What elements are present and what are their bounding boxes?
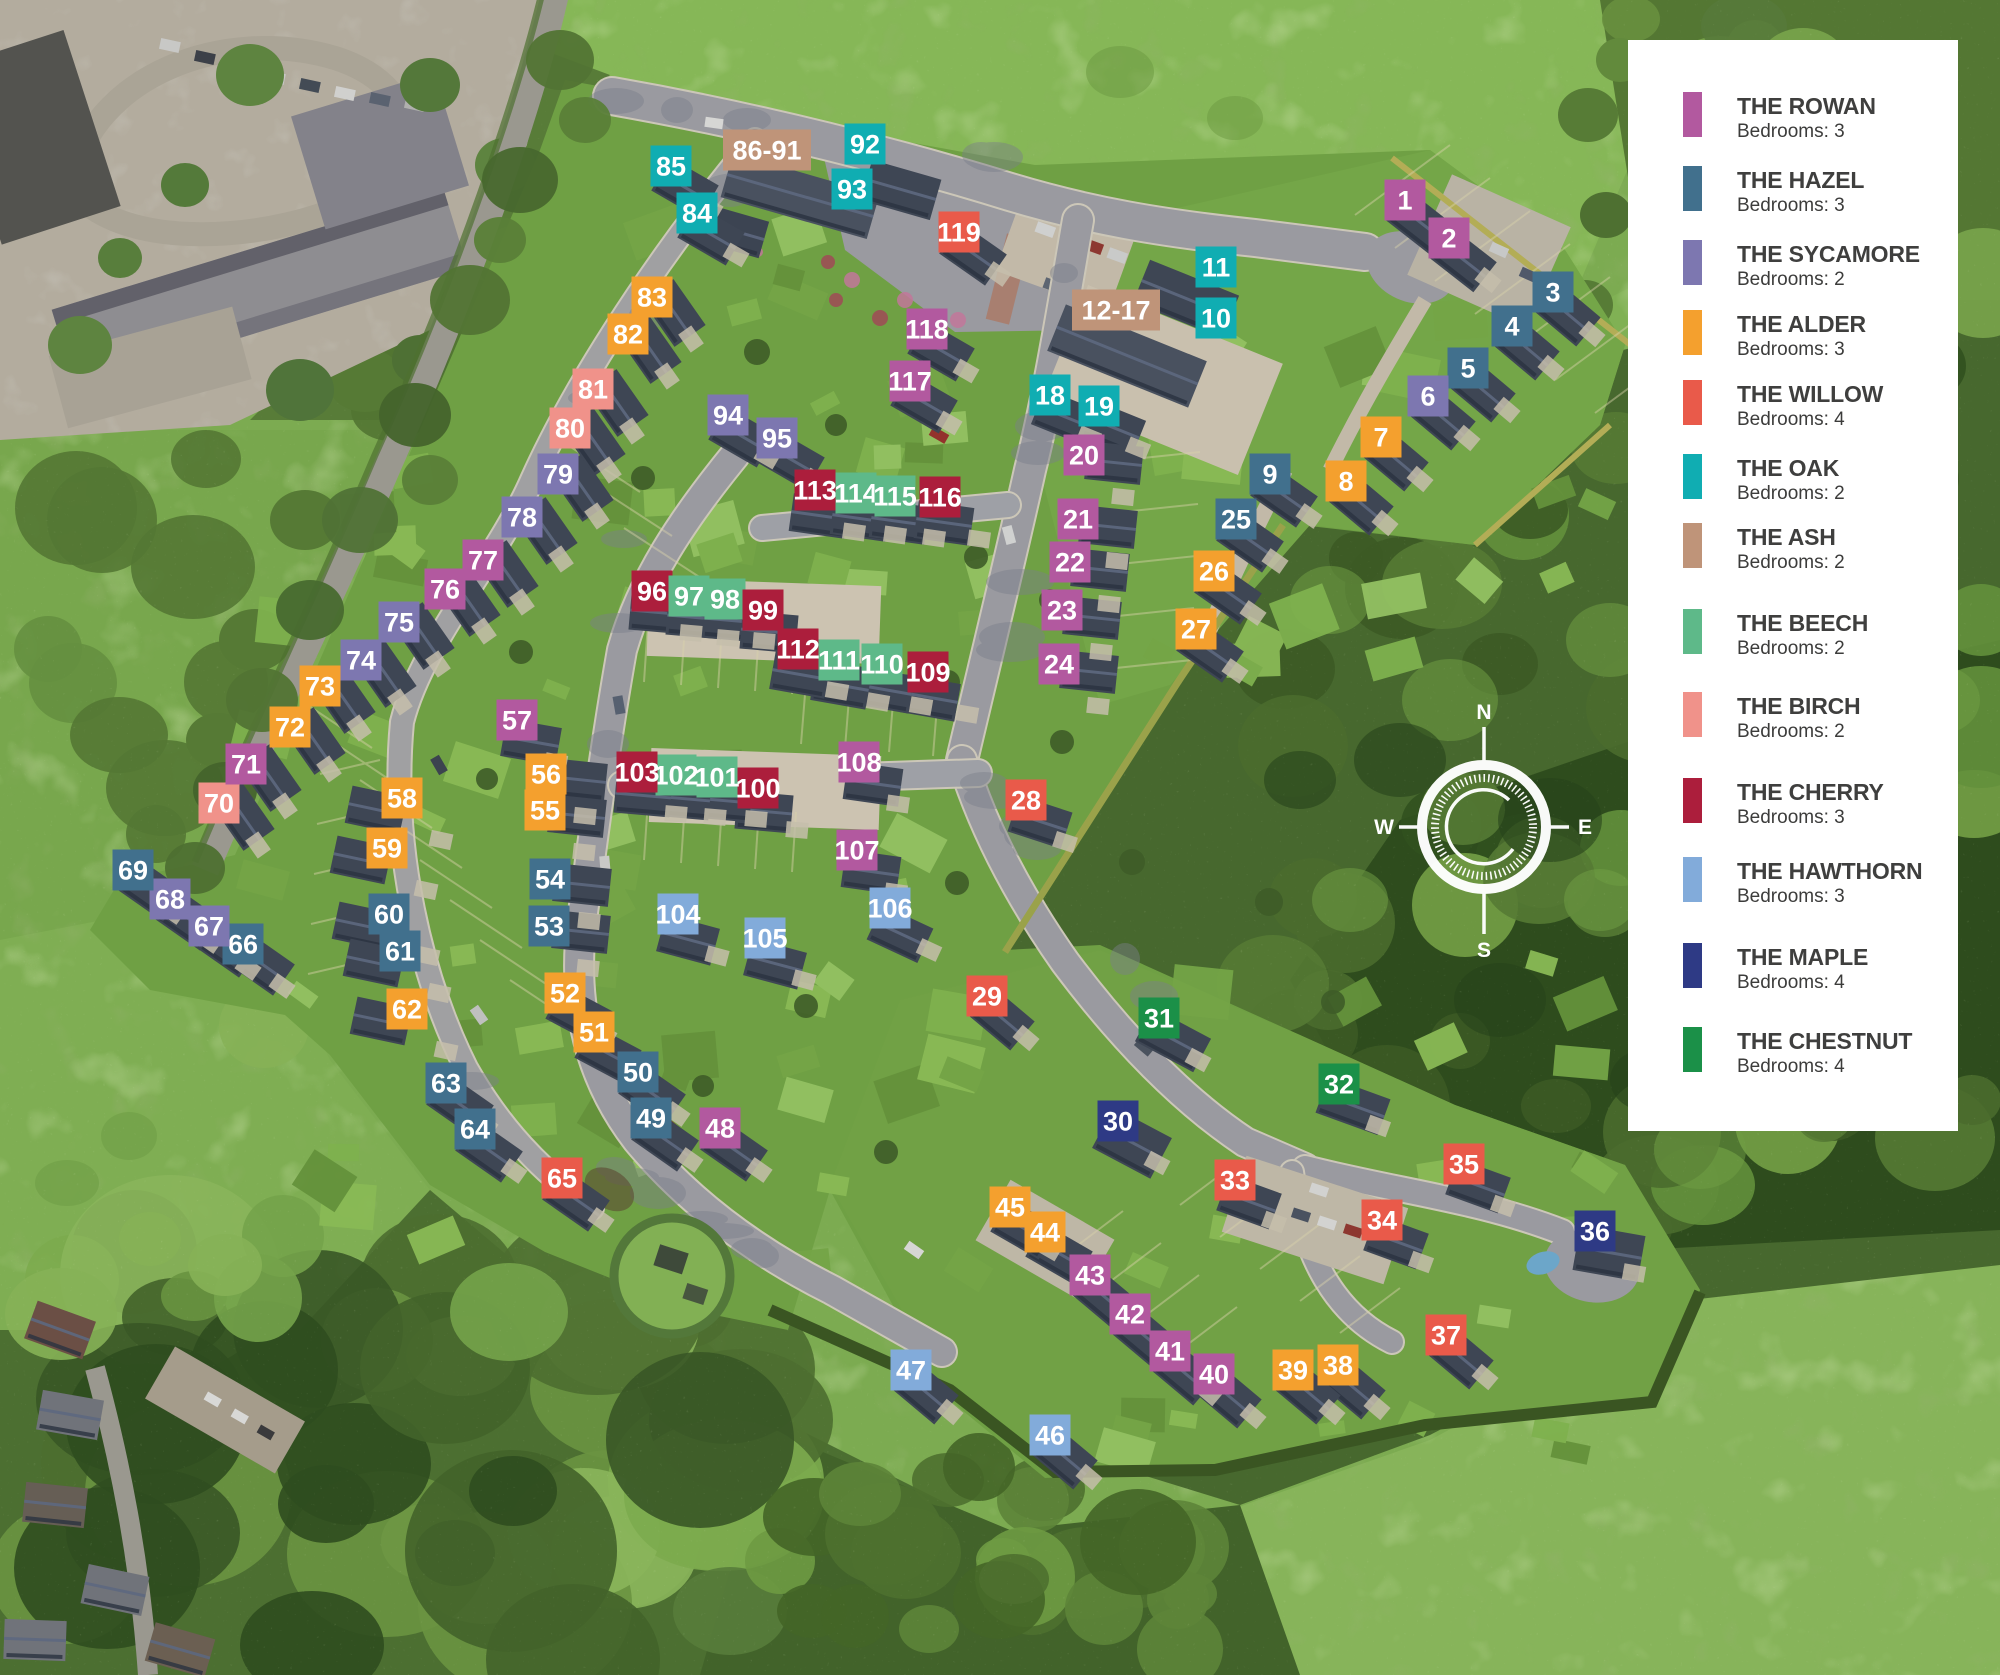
svg-text:19: 19	[1084, 392, 1114, 422]
svg-text:77: 77	[468, 546, 498, 576]
svg-text:61: 61	[385, 937, 415, 967]
svg-text:57: 57	[502, 706, 532, 736]
svg-text:Bedrooms: 2: Bedrooms: 2	[1737, 721, 1845, 742]
svg-text:114: 114	[834, 479, 878, 509]
svg-text:THE ASH: THE ASH	[1737, 524, 1836, 550]
svg-text:44: 44	[1030, 1218, 1060, 1248]
svg-text:50: 50	[623, 1058, 653, 1088]
svg-text:54: 54	[535, 865, 565, 895]
svg-text:84: 84	[682, 199, 712, 229]
svg-text:30: 30	[1103, 1107, 1133, 1137]
svg-text:4: 4	[1504, 312, 1519, 342]
svg-text:THE ROWAN: THE ROWAN	[1737, 93, 1876, 119]
svg-text:Bedrooms: 3: Bedrooms: 3	[1737, 121, 1845, 142]
svg-text:THE CHESTNUT: THE CHESTNUT	[1737, 1028, 1912, 1054]
svg-text:Bedrooms: 3: Bedrooms: 3	[1737, 886, 1845, 907]
svg-text:71: 71	[231, 750, 261, 780]
svg-text:52: 52	[550, 979, 580, 1009]
svg-text:86-91: 86-91	[732, 136, 801, 166]
svg-text:111: 111	[818, 646, 860, 676]
svg-text:105: 105	[742, 924, 787, 954]
svg-text:116: 116	[918, 483, 962, 513]
svg-text:Bedrooms: 2: Bedrooms: 2	[1737, 269, 1845, 290]
svg-text:11: 11	[1202, 253, 1231, 283]
svg-text:5: 5	[1460, 354, 1475, 384]
svg-text:10: 10	[1201, 304, 1231, 334]
svg-text:82: 82	[613, 320, 643, 350]
svg-text:Bedrooms: 4: Bedrooms: 4	[1737, 972, 1845, 993]
svg-text:102: 102	[653, 761, 698, 791]
svg-text:3: 3	[1545, 278, 1560, 308]
svg-text:58: 58	[387, 784, 417, 814]
svg-text:98: 98	[710, 585, 740, 615]
svg-text:66: 66	[228, 930, 258, 960]
svg-text:41: 41	[1155, 1337, 1185, 1367]
svg-text:39: 39	[1278, 1356, 1308, 1386]
svg-text:43: 43	[1075, 1261, 1105, 1291]
svg-text:21: 21	[1063, 505, 1093, 535]
svg-text:53: 53	[534, 912, 564, 942]
svg-text:70: 70	[204, 789, 234, 819]
svg-text:32: 32	[1324, 1070, 1354, 1100]
svg-text:38: 38	[1323, 1351, 1353, 1381]
svg-text:Bedrooms: 3: Bedrooms: 3	[1737, 195, 1845, 216]
svg-text:115: 115	[873, 482, 917, 512]
svg-text:THE BIRCH: THE BIRCH	[1737, 693, 1860, 719]
svg-text:8: 8	[1338, 467, 1353, 497]
svg-text:80: 80	[555, 414, 585, 444]
svg-text:22: 22	[1055, 548, 1085, 578]
svg-text:E: E	[1578, 816, 1592, 839]
svg-text:55: 55	[530, 796, 560, 826]
svg-text:48: 48	[705, 1114, 735, 1144]
svg-text:N: N	[1476, 701, 1491, 724]
svg-text:72: 72	[275, 713, 305, 743]
svg-text:20: 20	[1069, 441, 1099, 471]
svg-text:S: S	[1477, 939, 1491, 962]
svg-text:110: 110	[860, 650, 904, 680]
svg-text:60: 60	[374, 900, 404, 930]
svg-text:THE MAPLE: THE MAPLE	[1737, 944, 1868, 970]
svg-text:83: 83	[637, 283, 667, 313]
svg-text:Bedrooms: 4: Bedrooms: 4	[1737, 1056, 1845, 1077]
svg-text:42: 42	[1115, 1300, 1145, 1330]
svg-text:85: 85	[656, 152, 686, 182]
svg-text:113: 113	[793, 476, 837, 506]
svg-text:9: 9	[1262, 460, 1277, 490]
svg-text:63: 63	[431, 1069, 461, 1099]
svg-text:112: 112	[776, 635, 820, 665]
svg-text:Bedrooms: 3: Bedrooms: 3	[1737, 339, 1845, 360]
svg-text:68: 68	[155, 885, 185, 915]
svg-text:76: 76	[430, 575, 460, 605]
svg-text:THE BEECH: THE BEECH	[1737, 610, 1868, 636]
svg-text:Bedrooms: 2: Bedrooms: 2	[1737, 638, 1845, 659]
svg-text:26: 26	[1199, 557, 1229, 587]
svg-text:79: 79	[543, 460, 573, 490]
svg-text:75: 75	[384, 608, 414, 638]
svg-text:Bedrooms: 2: Bedrooms: 2	[1737, 552, 1845, 573]
svg-text:Bedrooms: 4: Bedrooms: 4	[1737, 409, 1845, 430]
svg-text:7: 7	[1373, 423, 1388, 453]
svg-text:107: 107	[834, 836, 879, 866]
svg-text:18: 18	[1035, 381, 1065, 411]
svg-text:THE HAZEL: THE HAZEL	[1737, 167, 1864, 193]
svg-text:78: 78	[507, 503, 537, 533]
svg-text:65: 65	[547, 1164, 577, 1194]
svg-text:45: 45	[995, 1193, 1025, 1223]
svg-text:12-17: 12-17	[1081, 296, 1150, 326]
svg-text:W: W	[1374, 816, 1394, 839]
svg-text:118: 118	[905, 315, 949, 345]
svg-text:25: 25	[1221, 505, 1251, 535]
svg-text:THE CHERRY: THE CHERRY	[1737, 779, 1884, 805]
svg-text:28: 28	[1011, 786, 1041, 816]
svg-text:49: 49	[636, 1104, 666, 1134]
svg-text:81: 81	[578, 375, 608, 405]
svg-text:64: 64	[460, 1115, 490, 1145]
svg-text:Bedrooms: 2: Bedrooms: 2	[1737, 483, 1845, 504]
svg-text:108: 108	[836, 748, 881, 778]
svg-text:73: 73	[305, 672, 335, 702]
svg-text:62: 62	[392, 995, 422, 1025]
svg-text:Bedrooms: 3: Bedrooms: 3	[1737, 807, 1845, 828]
svg-text:109: 109	[905, 658, 950, 688]
svg-text:99: 99	[748, 596, 778, 626]
svg-text:33: 33	[1220, 1166, 1250, 1196]
svg-text:40: 40	[1199, 1360, 1229, 1390]
svg-text:93: 93	[837, 175, 867, 205]
svg-text:92: 92	[850, 130, 880, 160]
svg-text:74: 74	[346, 646, 376, 676]
svg-text:104: 104	[655, 900, 700, 930]
svg-text:46: 46	[1035, 1421, 1065, 1451]
svg-text:THE WILLOW: THE WILLOW	[1737, 381, 1884, 407]
svg-text:119: 119	[937, 218, 981, 248]
svg-text:31: 31	[1144, 1004, 1174, 1034]
svg-text:94: 94	[713, 401, 743, 431]
svg-text:100: 100	[735, 774, 780, 804]
svg-text:THE SYCAMORE: THE SYCAMORE	[1737, 241, 1920, 267]
svg-text:24: 24	[1044, 650, 1074, 680]
svg-text:97: 97	[674, 582, 704, 612]
svg-text:103: 103	[614, 758, 659, 788]
svg-text:67: 67	[194, 912, 224, 942]
svg-text:56: 56	[531, 760, 561, 790]
svg-text:1: 1	[1397, 186, 1412, 216]
svg-text:29: 29	[972, 982, 1002, 1012]
svg-text:101: 101	[694, 763, 739, 793]
svg-text:34: 34	[1367, 1206, 1397, 1236]
svg-text:59: 59	[372, 834, 402, 864]
svg-text:36: 36	[1580, 1217, 1610, 1247]
svg-text:69: 69	[118, 856, 148, 886]
svg-text:117: 117	[888, 367, 932, 397]
svg-text:23: 23	[1047, 596, 1077, 626]
svg-text:6: 6	[1420, 382, 1435, 412]
svg-text:27: 27	[1181, 615, 1211, 645]
svg-text:35: 35	[1449, 1150, 1479, 1180]
svg-text:THE HAWTHORN: THE HAWTHORN	[1737, 858, 1922, 884]
svg-text:96: 96	[637, 577, 667, 607]
svg-text:51: 51	[579, 1018, 609, 1048]
svg-text:THE ALDER: THE ALDER	[1737, 311, 1867, 337]
svg-text:37: 37	[1431, 1321, 1461, 1351]
svg-text:47: 47	[896, 1356, 926, 1386]
svg-text:2: 2	[1441, 224, 1456, 254]
svg-text:95: 95	[762, 424, 792, 454]
svg-text:106: 106	[867, 894, 912, 924]
svg-text:THE OAK: THE OAK	[1737, 455, 1840, 481]
